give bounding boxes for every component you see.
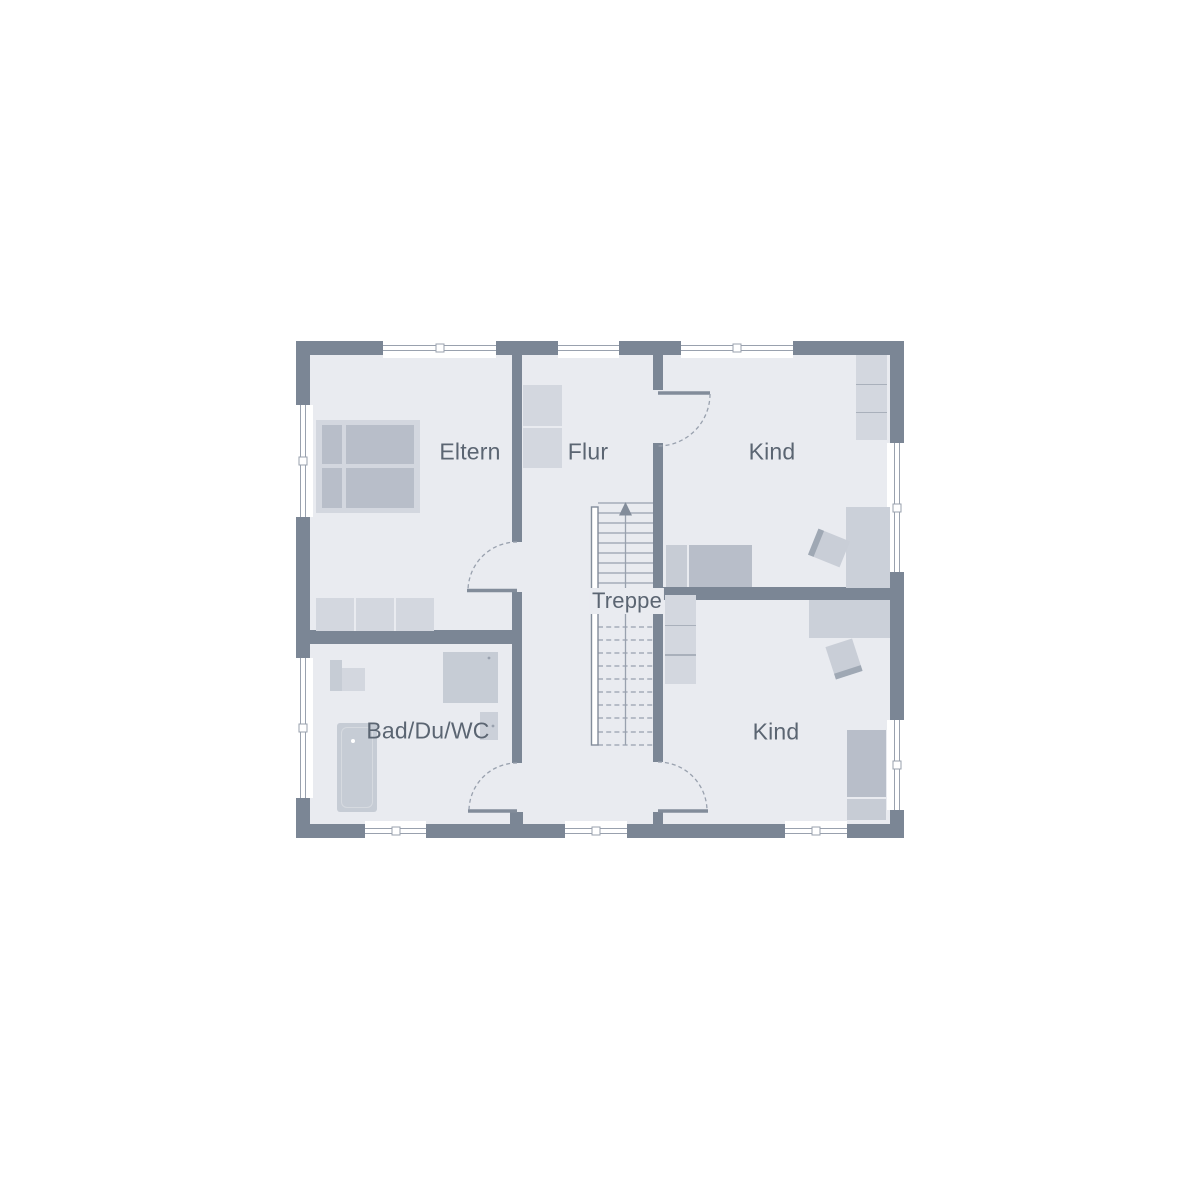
- window-handle-icon: [592, 827, 601, 836]
- wardrobe-divider: [856, 384, 887, 386]
- window-left-bad: [293, 658, 313, 798]
- bed-pillow: [322, 468, 342, 508]
- wardrobe-divider: [354, 598, 356, 631]
- wall-eltern-east-upper: [512, 341, 522, 542]
- window-handle-icon: [812, 827, 821, 836]
- bed-pillow: [322, 425, 342, 464]
- wardrobe-eltern: [316, 598, 434, 631]
- wardrobe-kind1: [856, 355, 887, 440]
- washbasin: [342, 668, 365, 691]
- window-handle-icon: [893, 503, 902, 512]
- room-label-eltern: Eltern: [439, 439, 500, 466]
- floor-plan: Eltern Flur Kind Treppe Bad/Du/WC Kind: [296, 341, 904, 838]
- wall-bad-door-stub: [510, 812, 523, 824]
- wardrobe-flur: [523, 385, 562, 468]
- bed-mattress: [346, 425, 414, 464]
- wardrobe-divider: [665, 654, 696, 656]
- window-glass: [558, 345, 619, 351]
- desk-kind2: [809, 600, 890, 638]
- wall-kind1-west-upper: [653, 341, 663, 390]
- room-label-flur: Flur: [568, 439, 608, 466]
- window-handle-icon: [435, 344, 444, 353]
- wardrobe-divider: [856, 412, 887, 414]
- wardrobe-divider: [665, 625, 696, 627]
- bed-kind2-mattress: [847, 730, 886, 797]
- window-top-eltern: [383, 338, 496, 358]
- wall-eltern-bad: [310, 630, 522, 644]
- bed-kind2-pillow: [847, 799, 886, 820]
- room-label-bad: Bad/Du/WC: [366, 718, 489, 745]
- window-top-flur: [558, 338, 619, 358]
- wall-bad-east: [512, 644, 522, 763]
- window-left-eltern: [293, 405, 313, 517]
- bed-kind1-mattress: [689, 545, 752, 587]
- room-label-treppe: Treppe: [590, 588, 664, 614]
- window-handle-icon: [391, 827, 400, 836]
- window-bottom-flur: [565, 821, 627, 841]
- window-handle-icon: [733, 344, 742, 353]
- double-bed: [316, 420, 420, 513]
- shower: [443, 652, 498, 703]
- bed-mattress: [346, 468, 414, 508]
- window-top-kind1: [681, 338, 793, 358]
- washbasin-cabinet: [330, 660, 342, 691]
- window-handle-icon: [299, 457, 308, 466]
- room-label-kind-bottom: Kind: [753, 719, 800, 746]
- wardrobe-divider: [394, 598, 396, 631]
- wardrobe-divider: [523, 426, 562, 428]
- wardrobe-kind2: [665, 595, 696, 684]
- room-label-kind-top: Kind: [749, 439, 796, 466]
- window-right-kind1: [887, 443, 907, 572]
- window-bottom-kind2: [785, 821, 847, 841]
- window-handle-icon: [299, 724, 308, 733]
- bed-kind1-pillow: [666, 545, 687, 587]
- window-handle-icon: [893, 761, 902, 770]
- window-bottom-bad: [365, 821, 426, 841]
- desk-kind1: [846, 507, 890, 588]
- wall-kind2-door-stub: [653, 812, 663, 824]
- window-right-kind2: [887, 720, 907, 810]
